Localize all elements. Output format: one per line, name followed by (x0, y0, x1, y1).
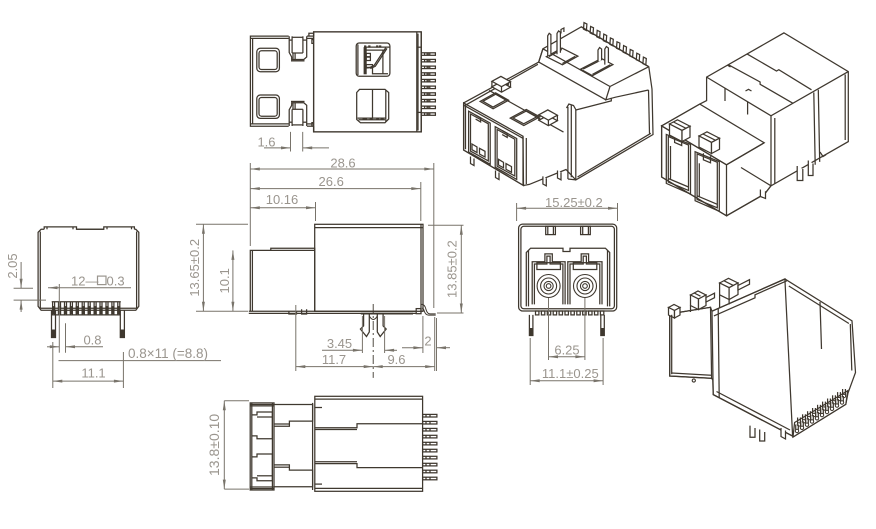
svg-text:3.45: 3.45 (327, 336, 352, 351)
svg-text:10.16: 10.16 (266, 192, 299, 207)
svg-text:9.6: 9.6 (387, 352, 405, 367)
svg-text:10.1: 10.1 (217, 268, 232, 293)
svg-text:0.8×11 (=8.8): 0.8×11 (=8.8) (128, 346, 208, 361)
svg-text:12—: 12— (71, 274, 98, 289)
svg-text:13.8±0.10: 13.8±0.10 (206, 414, 222, 476)
svg-text:2.05: 2.05 (5, 253, 20, 278)
svg-text:15.25±0.2: 15.25±0.2 (545, 195, 603, 210)
svg-text:28.6: 28.6 (330, 155, 355, 170)
svg-text:0.8: 0.8 (83, 332, 101, 347)
svg-text:13.85±0.2: 13.85±0.2 (445, 240, 460, 298)
svg-text:2: 2 (424, 333, 431, 348)
svg-text:11.1: 11.1 (81, 366, 105, 381)
svg-text:1.6: 1.6 (257, 134, 275, 149)
svg-text:11.7: 11.7 (322, 352, 346, 367)
svg-text:26.6: 26.6 (319, 174, 344, 189)
svg-text:11.1±0.25: 11.1±0.25 (542, 366, 599, 381)
svg-text:6.25: 6.25 (554, 343, 579, 358)
svg-text:13.65±0.2: 13.65±0.2 (187, 239, 202, 297)
svg-text:0.3: 0.3 (107, 274, 125, 289)
